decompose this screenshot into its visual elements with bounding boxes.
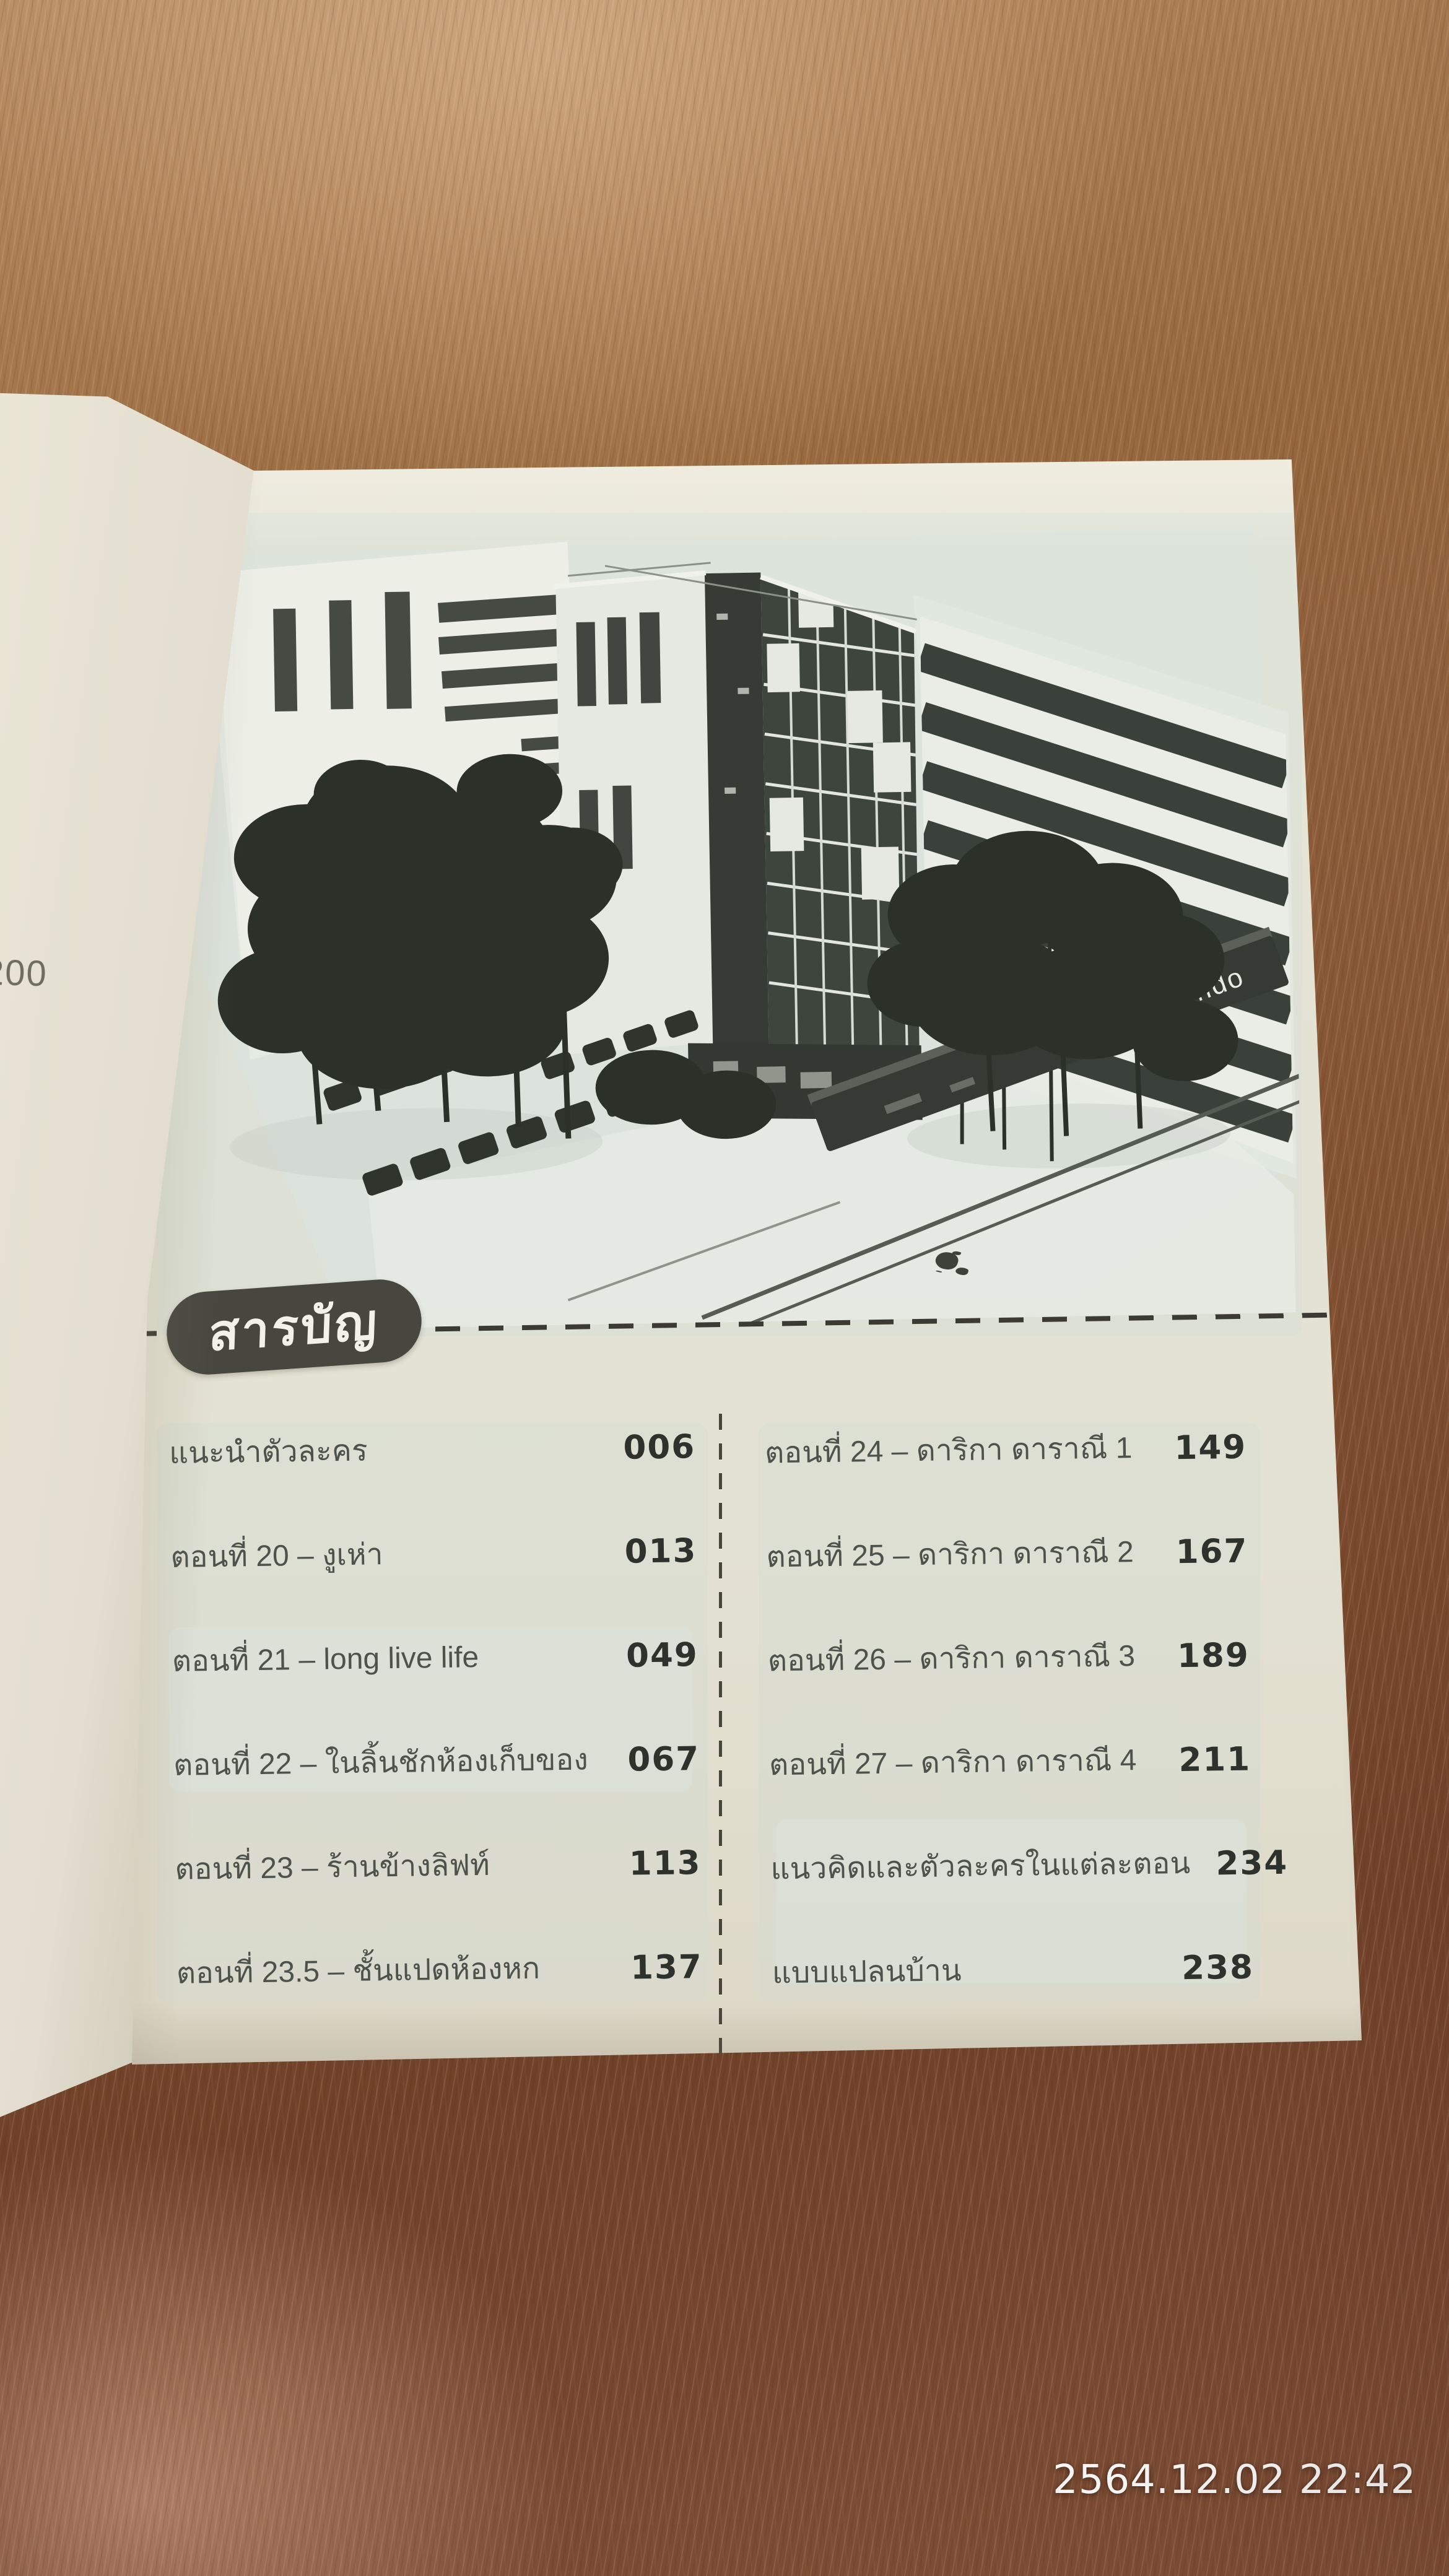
toc-entry-title: ตอนที่ 25 – ดาริกา ดาราณี 2 <box>766 1533 1151 1578</box>
toc-entry-title: แนะนำตัวละคร <box>169 1428 598 1474</box>
toc-entry: ตอนที่ 20 – งูเห่า 013 <box>170 1531 697 1578</box>
toc-entry-page: 049 <box>611 1636 698 1675</box>
toc-entry: ตอนที่ 26 – ดาริกา ดาราณี 3 189 <box>767 1635 1250 1682</box>
toc-entry-title: ตอนที่ 26 – ดาริกา ดาราณี 3 <box>767 1637 1152 1682</box>
column-divider <box>719 1414 722 2055</box>
toc-entry-title: ตอนที่ 27 – ดาริกา ดาราณี 4 <box>769 1741 1154 1786</box>
toc-entry-title: แบบแปลนบ้าน <box>772 1949 1156 1994</box>
toc-entry-title: แนวคิดและตัวละครในแต่ละตอน <box>770 1844 1191 1890</box>
toc-entry-page: 067 <box>613 1740 700 1779</box>
toc-entry: แนวคิดและตัวละครในแต่ละตอน 234 <box>770 1843 1253 1891</box>
toc-entry: ตอนที่ 27 – ดาริกา ดาราณี 4 211 <box>769 1739 1251 1786</box>
toc-entry-page: 006 <box>609 1428 696 1467</box>
toc-column-right: ตอนที่ 24 – ดาริกา ดาราณี 1 149 ตอนที่ 2… <box>765 1427 1255 1995</box>
toc-entry-page: 167 <box>1161 1533 1248 1572</box>
camera-timestamp: 2564.12.02 22:42 <box>1053 2457 1416 2503</box>
toc-header-pill: สารบัญ <box>164 1277 424 1377</box>
toc-entry: ตอนที่ 22 – ในลิ้นชักห้องเก็บของ 067 <box>173 1739 700 1786</box>
toc-book-page: condo <box>132 457 1362 2065</box>
toc-entry: ตอนที่ 23 – ร้านข้างลิฟท์ 113 <box>175 1843 702 1891</box>
toc-entry-title: ตอนที่ 20 – งูเห่า <box>170 1532 599 1578</box>
toc-entry-title: ตอนที่ 23 – ร้านข้างลิฟท์ <box>175 1844 604 1890</box>
toc-entry: แบบแปลนบ้าน 238 <box>772 1947 1254 1995</box>
toc-entry-page: 137 <box>616 1948 703 1987</box>
toc-entry-page: 113 <box>614 1844 702 1883</box>
left-page-number: 200 <box>0 952 48 995</box>
toc-entry-page: 238 <box>1167 1949 1254 1988</box>
toc-entry-page: 189 <box>1162 1637 1250 1676</box>
toc-entry-page: 149 <box>1160 1429 1247 1468</box>
toc-entry-page: 013 <box>610 1532 697 1571</box>
toc-entry-page: 211 <box>1164 1741 1251 1780</box>
toc-entry: ตอนที่ 24 – ดาริกา ดาราณี 1 149 <box>765 1427 1247 1474</box>
toc-entry-title: ตอนที่ 22 – ในลิ้นชักห้องเก็บของ <box>173 1740 603 1786</box>
condo-illustration: condo <box>168 516 1303 1331</box>
toc-entry-page: 234 <box>1201 1844 1289 1883</box>
toc-entry: แนะนำตัวละคร 006 <box>169 1427 696 1474</box>
toc-title: สารบัญ <box>207 1282 380 1373</box>
toc-entry: ตอนที่ 25 – ดาริกา ดาราณี 2 167 <box>766 1531 1248 1578</box>
toc-entry: ตอนที่ 23.5 – ชั้นแปดห้องหก 137 <box>176 1947 703 1995</box>
photo-scene: 200 <box>0 0 1449 2576</box>
toc-entry-title: ตอนที่ 24 – ดาริกา ดาราณี 1 <box>765 1429 1149 1474</box>
toc-entry-title: ตอนที่ 23.5 – ชั้นแปดห้องหก <box>176 1948 605 1994</box>
toc-entry-title: ตอนที่ 21 – long live life <box>172 1636 601 1682</box>
toc-column-left: แนะนำตัวละคร 006 ตอนที่ 20 – งูเห่า 013 … <box>169 1427 703 1995</box>
toc-entry: ตอนที่ 21 – long live life 049 <box>172 1635 698 1682</box>
